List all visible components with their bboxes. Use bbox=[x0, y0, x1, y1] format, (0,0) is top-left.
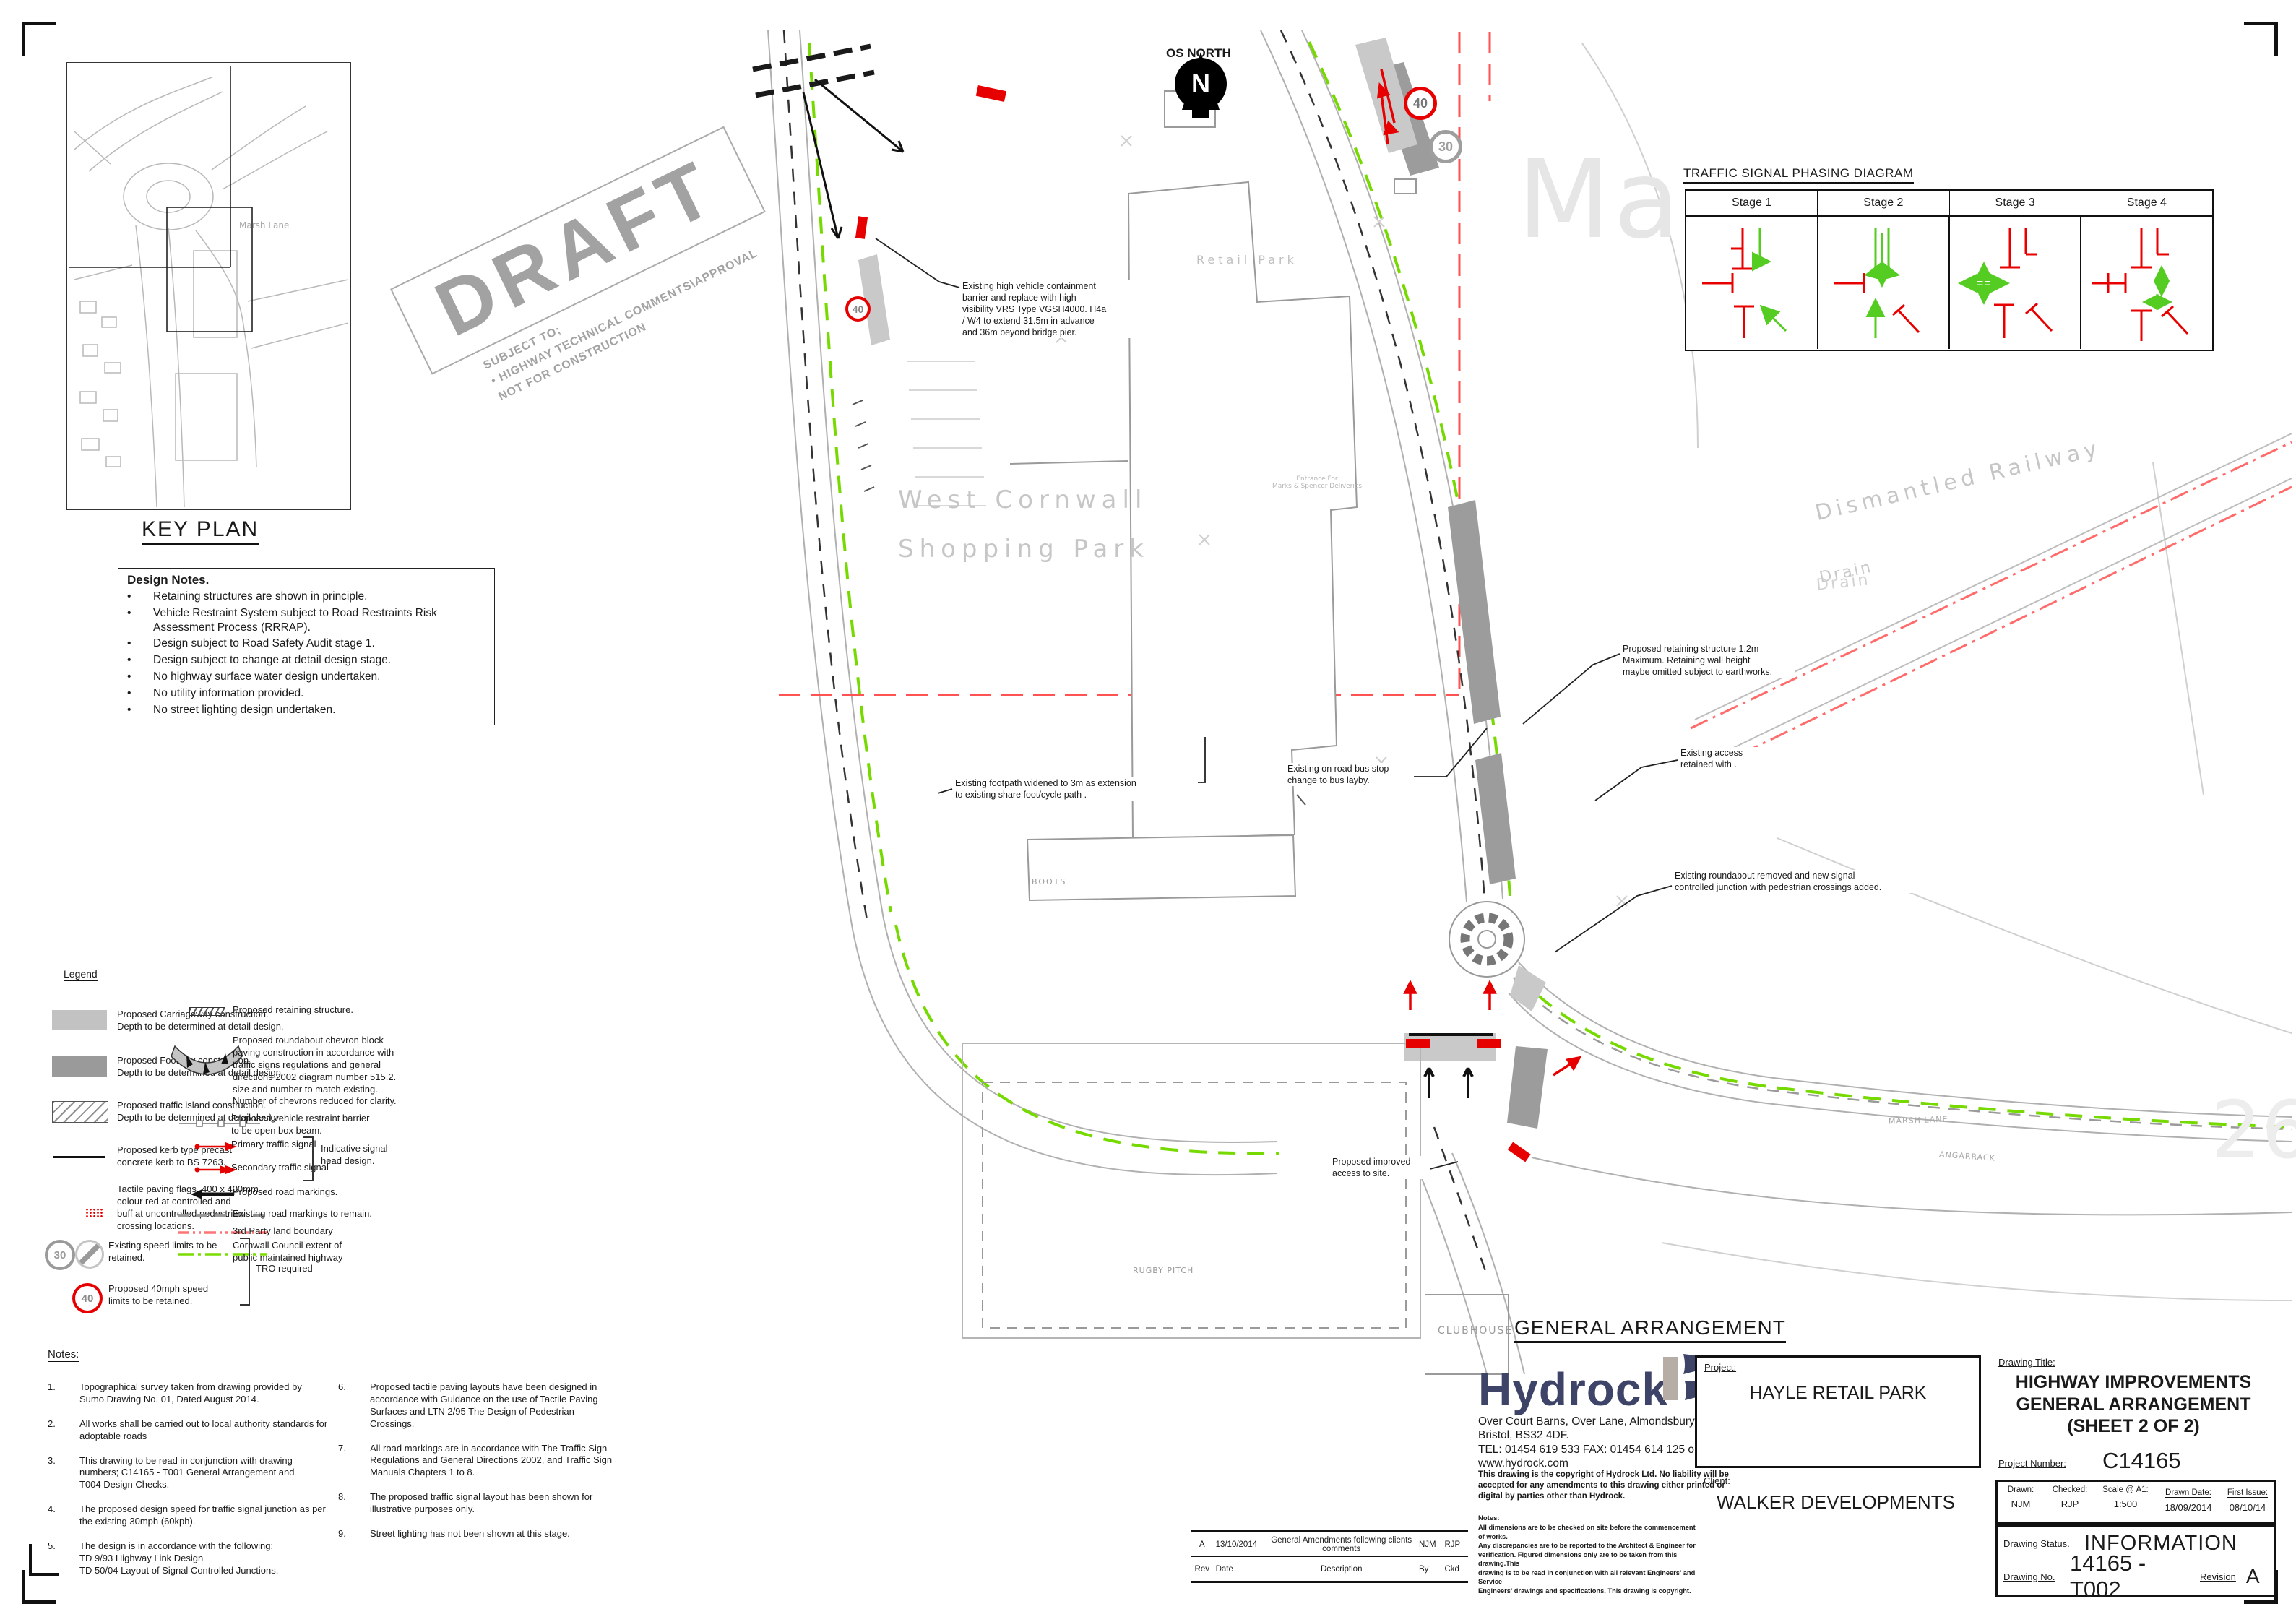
retaining-swatch bbox=[189, 1007, 225, 1016]
drawing-status-label: Drawing Status. bbox=[2003, 1538, 2084, 1549]
project-label: Project: bbox=[1704, 1362, 1979, 1373]
traffic-island-swatch bbox=[52, 1101, 108, 1123]
phasing-body bbox=[1686, 217, 2212, 349]
footway-swatch bbox=[52, 1056, 107, 1077]
hydrock-copyright: This drawing is the copyright of Hydrock… bbox=[1478, 1470, 1729, 1502]
north-n-label: N bbox=[1191, 69, 1210, 98]
shopping-park-label: Shopping Park bbox=[898, 535, 1149, 564]
stage-1-header: Stage 1 bbox=[1686, 191, 1818, 215]
status-box: Drawing Status. INFORMATION Drawing No. … bbox=[1995, 1524, 2276, 1597]
annotation-footpath: Existing footpath widened to 3m as exten… bbox=[955, 777, 1198, 801]
nsl-sign-icon bbox=[75, 1240, 104, 1269]
revision-table: A 13/10/2014 General Amendments followin… bbox=[1191, 1530, 1468, 1583]
notes-title: Notes: bbox=[48, 1348, 79, 1362]
hydrock-logo: Hydrock bbox=[1478, 1363, 1668, 1416]
drawn-date-label: Drawn Date: bbox=[2165, 1488, 2211, 1498]
revision-row: A 13/10/2014 General Amendments followin… bbox=[1191, 1532, 1468, 1556]
first-issue-value: 08/10/14 bbox=[2222, 1502, 2274, 1513]
hydrock-flag-icon bbox=[1663, 1357, 1678, 1400]
checked-label: Checked: bbox=[2044, 1485, 2096, 1494]
entrance-label: Entrance For Marks & Spencer Deliveries bbox=[1256, 475, 1378, 490]
notes-right-column: 6.Proposed tactile paving layouts have b… bbox=[338, 1381, 649, 1553]
legend-chevron: Proposed roundabout chevron block paving… bbox=[233, 1035, 397, 1108]
kerb-swatch bbox=[53, 1156, 105, 1158]
retail-park-label: Retail Park bbox=[1196, 253, 1298, 267]
drawing-no-label: Drawing No. bbox=[2003, 1571, 2070, 1582]
faint-ma-label: Ma bbox=[1517, 137, 1683, 263]
phasing-title: TRAFFIC SIGNAL PHASING DIAGRAM bbox=[1683, 166, 1914, 184]
west-cornwall-label: West Cornwall bbox=[898, 486, 1147, 514]
legend-speed40: Proposed 40mph speed limits to be retain… bbox=[108, 1283, 208, 1308]
notes-left-column: 1.Topographical survey taken from drawin… bbox=[48, 1381, 337, 1589]
checked-value: RJP bbox=[2044, 1498, 2096, 1509]
legend-third-party: 3rd Party land boundary bbox=[233, 1225, 333, 1238]
speed-40-roundel-west: 40 bbox=[845, 296, 871, 322]
legend-existing-markings: Existing road markings to remain. bbox=[233, 1208, 372, 1220]
drawing-title: HIGHWAY IMPROVEMENTS GENERAL ARRANGEMENT… bbox=[1995, 1371, 2271, 1438]
first-issue-label: First Issue: bbox=[2227, 1488, 2268, 1498]
annotation-vrs: Existing high vehicle containment barrie… bbox=[962, 280, 1133, 338]
trim-mark bbox=[22, 22, 56, 56]
drawn-date-value: 18/09/2014 bbox=[2155, 1502, 2222, 1513]
project-number-label: Project Number: bbox=[1998, 1458, 2066, 1469]
scale-label: Scale @ A1: bbox=[2096, 1485, 2155, 1494]
stage-3-header: Stage 3 bbox=[1950, 191, 2081, 215]
revision-label: Revision bbox=[2200, 1571, 2236, 1582]
drawing-info-table: Drawn: NJM Checked: RJP Scale @ A1: 1:50… bbox=[1995, 1480, 2276, 1524]
chevron-swatch bbox=[171, 1038, 243, 1085]
trim-mark bbox=[2244, 22, 2278, 56]
legend-indicative: Indicative signal head design. bbox=[321, 1143, 388, 1168]
road-markings-swatch bbox=[189, 1189, 236, 1199]
project-name: HAYLE RETAIL PARK bbox=[1697, 1383, 1979, 1404]
project-number: C14165 bbox=[2102, 1448, 2181, 1474]
indicative-bracket bbox=[302, 1136, 315, 1182]
drawn-label: Drawn: bbox=[1998, 1485, 2044, 1494]
design-notes-title: Design Notes. bbox=[127, 573, 487, 587]
rugby-pitch-label: RUGBY PITCH bbox=[1133, 1266, 1194, 1275]
annotation-retaining: Proposed retaining structure 1.2m Maximu… bbox=[1623, 643, 1795, 678]
legend-cornwall: Cornwall Council extent of public mainta… bbox=[233, 1240, 342, 1264]
sign-40-icon: 40 bbox=[72, 1283, 103, 1313]
clubhouse-label: CLUBHOUSE bbox=[1438, 1325, 1513, 1337]
project-box: Project: HAYLE RETAIL PARK bbox=[1695, 1355, 1981, 1468]
legend-barrier: Proposed vehicle restraint barrier to be… bbox=[231, 1113, 369, 1137]
stage-2-header: Stage 2 bbox=[1818, 191, 1949, 215]
key-plan-map bbox=[67, 63, 348, 507]
annotation-bus-stop: Existing on road bus stop change to bus … bbox=[1287, 763, 1414, 786]
hydrock-address: Over Court Barns, Over Lane, Almondsbury… bbox=[1478, 1415, 1720, 1471]
annotation-roundabout: Existing roundabout removed and new sign… bbox=[1675, 870, 1917, 893]
tb-notes-title: Notes: bbox=[1478, 1514, 1500, 1522]
drawing-title-label: Drawing Title: bbox=[1998, 1357, 2055, 1368]
drawing-no: 14165 - T002 bbox=[2070, 1550, 2200, 1602]
revision-header-row: Rev Date Description By Ckd bbox=[1191, 1557, 1468, 1581]
general-arrangement-title: GENERAL ARRANGEMENT bbox=[1514, 1316, 1786, 1343]
sign-30-icon: 30 bbox=[45, 1240, 75, 1270]
phasing-header: Stage 1 Stage 2 Stage 3 Stage 4 bbox=[1686, 191, 2212, 217]
legend-retaining: Proposed retaining structure. bbox=[233, 1004, 353, 1017]
key-plan-title: KEY PLAN bbox=[142, 517, 259, 545]
speed-40-roundel: 40 bbox=[1404, 87, 1437, 120]
legend-road-markings: Proposed road markings. bbox=[233, 1186, 337, 1199]
os-north-label: OS NORTH bbox=[1166, 46, 1231, 61]
tb-notes: All dimensions are to be checked on site… bbox=[1478, 1523, 1702, 1595]
annotation-improved-access: Proposed improved access to site. bbox=[1332, 1156, 1430, 1179]
phasing-table: Stage 1 Stage 2 Stage 3 Stage 4 bbox=[1685, 189, 2214, 351]
scale-value: 1:500 bbox=[2096, 1498, 2155, 1509]
annotation-access: Existing access retained with . bbox=[1680, 747, 1774, 770]
key-plan: Marsh Lane bbox=[66, 62, 351, 510]
client-name: WALKER DEVELOPMENTS bbox=[1695, 1491, 1977, 1514]
carriageway-swatch bbox=[52, 1010, 107, 1030]
faint-26-label: 26 bbox=[2211, 1084, 2296, 1176]
keyplan-marsh-lane-label: Marsh Lane bbox=[239, 220, 289, 230]
tactile-swatch bbox=[85, 1208, 104, 1217]
legend-tro: TRO required bbox=[256, 1263, 313, 1275]
drawn-value: NJM bbox=[1998, 1498, 2044, 1509]
speed-30-roundel: 30 bbox=[1429, 130, 1462, 163]
legend-title: Legend bbox=[64, 968, 98, 981]
design-notes: Design Notes. •Retaining structures are … bbox=[118, 568, 495, 725]
revision-value: A bbox=[2246, 1565, 2260, 1588]
stage-4-header: Stage 4 bbox=[2081, 191, 2212, 215]
boots-label: BOOTS bbox=[1032, 877, 1066, 887]
client-label: Client: bbox=[1704, 1475, 1730, 1486]
